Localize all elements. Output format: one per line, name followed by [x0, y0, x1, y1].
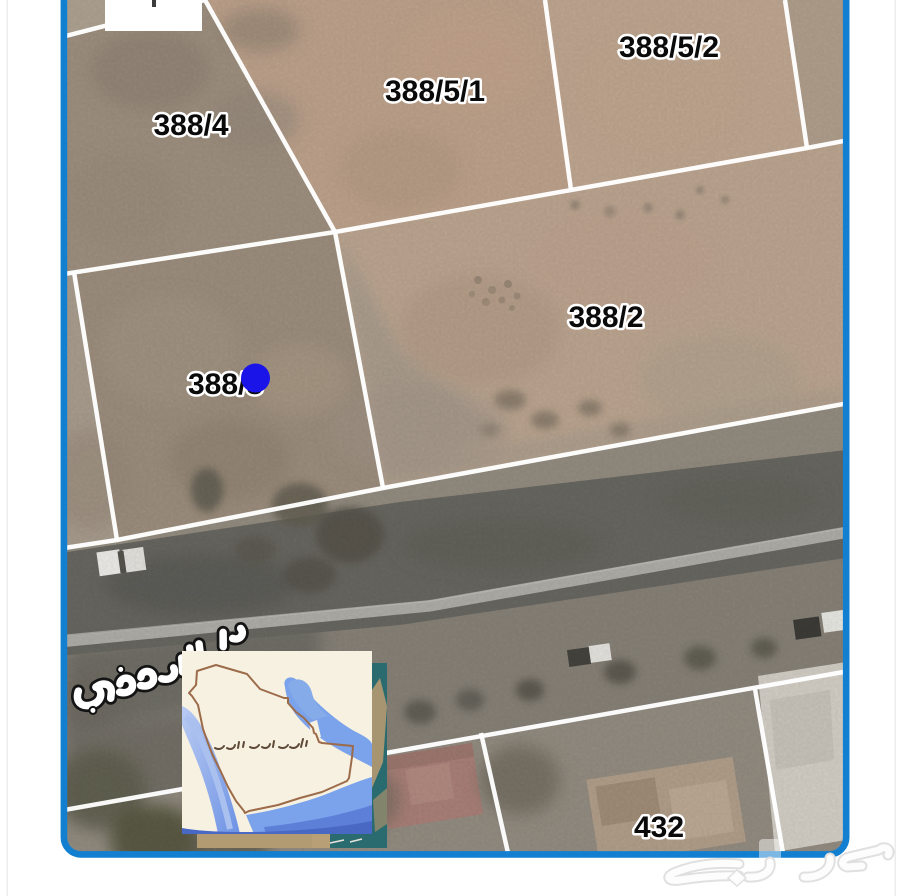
svg-text:388/2: 388/2	[568, 301, 643, 334]
svg-text:388/5/2: 388/5/2	[619, 31, 719, 64]
svg-text:388/4: 388/4	[153, 109, 228, 142]
svg-text:432: 432	[634, 811, 684, 844]
svg-text:388/5/1: 388/5/1	[385, 75, 485, 108]
